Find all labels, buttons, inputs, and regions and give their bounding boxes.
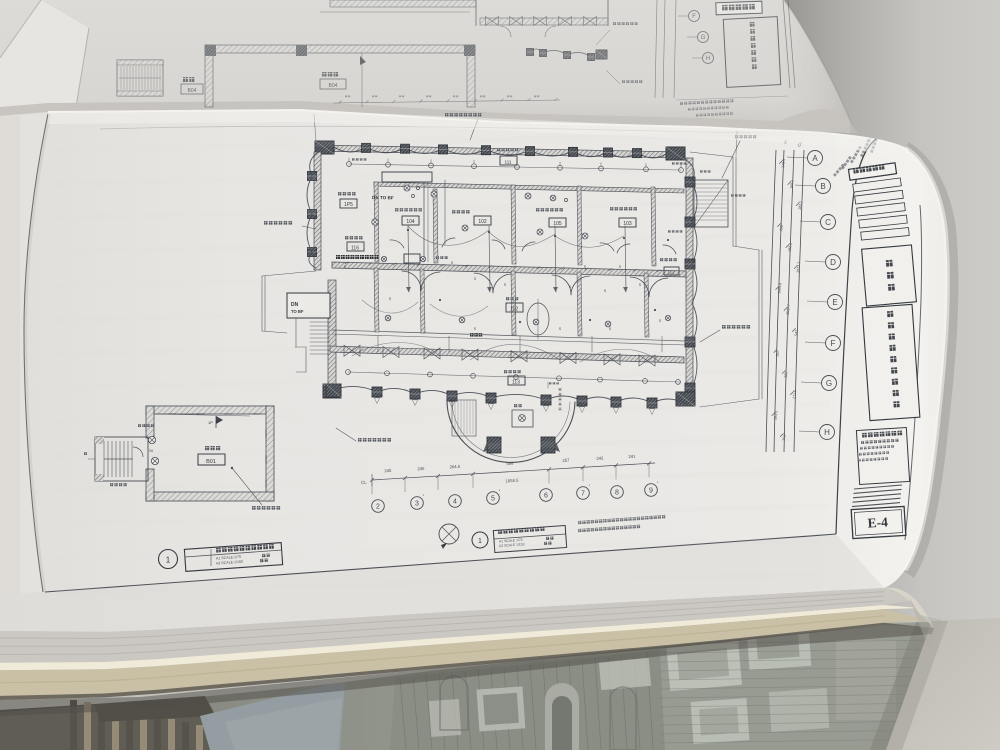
svg-text:H: H (706, 56, 710, 62)
svg-text:245: 245 (417, 466, 425, 471)
svg-text:200: 200 (779, 225, 784, 231)
svg-text:6: 6 (544, 493, 548, 500)
svg-text:F: F (692, 14, 696, 20)
svg-text:182: 182 (775, 351, 780, 357)
svg-text:9: 9 (649, 488, 653, 495)
svg-text:E-4: E-4 (867, 514, 888, 530)
svg-text:C: C (825, 218, 831, 227)
svg-text:5: 5 (491, 496, 495, 503)
svg-text:': ' (657, 482, 658, 488)
svg-text:E: E (832, 298, 837, 307)
svg-text:': ' (499, 490, 500, 496)
svg-text:B04: B04 (188, 88, 197, 94)
svg-text:113: 113 (512, 380, 520, 386)
svg-text:1: 1 (478, 538, 482, 545)
svg-text:111: 111 (505, 160, 512, 165)
svg-text:1P5: 1P5 (344, 202, 353, 208)
svg-text:B04: B04 (329, 83, 338, 89)
svg-text:G: G (826, 379, 832, 388)
svg-text:242: 242 (596, 455, 604, 460)
svg-text:DN TO BF: DN TO BF (372, 195, 394, 200)
svg-text:103: 103 (623, 221, 632, 227)
svg-text:': ' (423, 495, 424, 501)
svg-text:': ' (589, 485, 590, 491)
svg-text:241: 241 (628, 454, 636, 459)
svg-text:8: 8 (615, 490, 619, 497)
svg-text:264.5: 264.5 (450, 464, 461, 470)
svg-text:564: 564 (506, 461, 514, 466)
svg-text:DN: DN (291, 302, 299, 308)
svg-text:G: G (701, 35, 706, 41)
svg-text:7: 7 (581, 491, 585, 498)
svg-text:D: D (830, 258, 836, 267)
svg-text:2: 2 (376, 504, 380, 511)
svg-text:B01: B01 (206, 459, 216, 465)
svg-text:102: 102 (478, 219, 487, 225)
svg-text:A: A (812, 154, 818, 163)
svg-text:245: 245 (384, 468, 392, 473)
svg-text:4: 4 (453, 499, 457, 506)
svg-text:F: F (831, 339, 836, 348)
svg-text:257: 257 (562, 457, 570, 462)
svg-text:104: 104 (406, 219, 415, 225)
svg-text:B: B (820, 182, 825, 191)
svg-text:3: 3 (415, 501, 419, 508)
svg-text:105: 105 (553, 221, 562, 227)
